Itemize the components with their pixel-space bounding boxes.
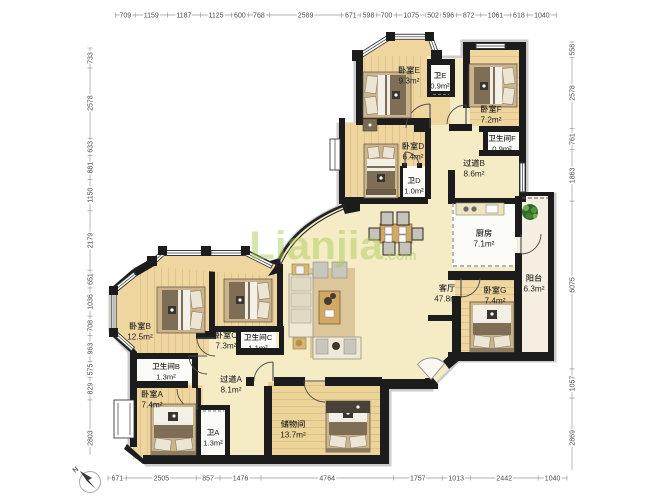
svg-text:761: 761 (570, 133, 577, 145)
svg-text:B: B (175, 362, 180, 371)
svg-text:1013: 1013 (448, 476, 464, 483)
svg-text:12.5m²: 12.5m² (127, 333, 153, 342)
svg-text:1.3m²: 1.3m² (156, 373, 176, 382)
svg-text:0.9m²: 0.9m² (430, 82, 450, 91)
svg-text:1061: 1061 (488, 13, 504, 20)
svg-text:618: 618 (513, 13, 525, 20)
svg-text:1150: 1150 (88, 187, 95, 202)
svg-text:E: E (441, 71, 446, 80)
svg-text:2578: 2578 (570, 85, 577, 101)
svg-text:857: 857 (202, 476, 214, 483)
svg-text:4764: 4764 (319, 476, 335, 483)
svg-text:E: E (415, 66, 421, 75)
svg-text:Lianjia: Lianjia (249, 224, 384, 268)
svg-text:575: 575 (88, 364, 95, 376)
svg-text:D: D (418, 142, 424, 151)
svg-text:B: B (480, 159, 486, 168)
svg-text:596: 596 (442, 13, 454, 20)
svg-text:963: 963 (88, 343, 95, 355)
svg-text:7.3m²: 7.3m² (216, 342, 237, 351)
svg-text:733: 733 (88, 52, 95, 64)
svg-text:6.3m²: 6.3m² (524, 285, 545, 294)
svg-text:2505: 2505 (154, 476, 170, 483)
svg-text:600: 600 (234, 13, 246, 20)
svg-text:1057: 1057 (570, 376, 577, 392)
svg-text:881: 881 (88, 162, 95, 174)
svg-text:872: 872 (463, 13, 475, 20)
svg-text:47.8m²: 47.8m² (434, 295, 460, 304)
svg-text:2589: 2589 (298, 13, 314, 20)
svg-text:1.0m²: 1.0m² (404, 187, 424, 196)
svg-text:7.4m²: 7.4m² (142, 401, 163, 410)
svg-text:7.2m²: 7.2m² (481, 116, 502, 125)
svg-text:1040: 1040 (545, 476, 561, 483)
svg-text:1040: 1040 (534, 13, 550, 20)
svg-text:2442: 2442 (496, 476, 512, 483)
svg-text:1.3m²: 1.3m² (203, 439, 223, 448)
svg-text:.com: .com (384, 247, 417, 263)
svg-text:1125: 1125 (208, 13, 223, 20)
svg-text:8.6m²: 8.6m² (464, 170, 485, 179)
svg-text:651: 651 (88, 273, 95, 285)
svg-text:7.4m²: 7.4m² (485, 297, 506, 306)
svg-text:671: 671 (111, 476, 123, 483)
svg-text:F: F (511, 134, 516, 143)
svg-text:C: C (267, 333, 273, 342)
svg-text:9.3m²: 9.3m² (399, 77, 420, 86)
svg-text:633: 633 (88, 141, 95, 153)
svg-text:8.1m²: 8.1m² (221, 386, 242, 395)
svg-text:A: A (158, 390, 164, 399)
svg-text:A: A (237, 375, 243, 384)
svg-text:1075: 1075 (403, 13, 419, 20)
svg-text:1036: 1036 (88, 294, 95, 310)
svg-text:502: 502 (427, 13, 439, 20)
svg-text:1187: 1187 (176, 13, 191, 20)
svg-text:2803: 2803 (88, 430, 95, 446)
svg-text:671: 671 (345, 13, 357, 20)
svg-text:1476: 1476 (233, 476, 249, 483)
svg-text:0.9m²: 0.9m² (492, 145, 512, 154)
svg-text:C: C (231, 331, 237, 340)
svg-text:D: D (415, 176, 421, 185)
svg-text:1863: 1863 (570, 168, 577, 184)
svg-text:598: 598 (363, 13, 375, 20)
svg-text:768: 768 (253, 13, 265, 20)
svg-text:829: 829 (88, 383, 95, 395)
svg-text:708: 708 (88, 320, 95, 332)
svg-text:1.1m²: 1.1m² (248, 344, 268, 353)
svg-text:558: 558 (570, 44, 577, 56)
svg-text:2179: 2179 (88, 233, 95, 249)
svg-text:709: 709 (119, 13, 131, 20)
svg-text:7.1m²: 7.1m² (474, 240, 495, 249)
svg-text:6.4m²: 6.4m² (403, 153, 424, 162)
svg-text:13.7m²: 13.7m² (280, 431, 306, 440)
svg-text:700: 700 (381, 13, 393, 20)
svg-text:G: G (500, 286, 506, 295)
svg-text:6075: 6075 (570, 277, 577, 293)
svg-text:1159: 1159 (144, 13, 159, 20)
svg-text:1757: 1757 (410, 476, 426, 483)
svg-text:2578: 2578 (88, 95, 95, 111)
svg-text:B: B (146, 322, 152, 331)
svg-text:2869: 2869 (570, 430, 577, 446)
svg-text:F: F (497, 105, 502, 114)
